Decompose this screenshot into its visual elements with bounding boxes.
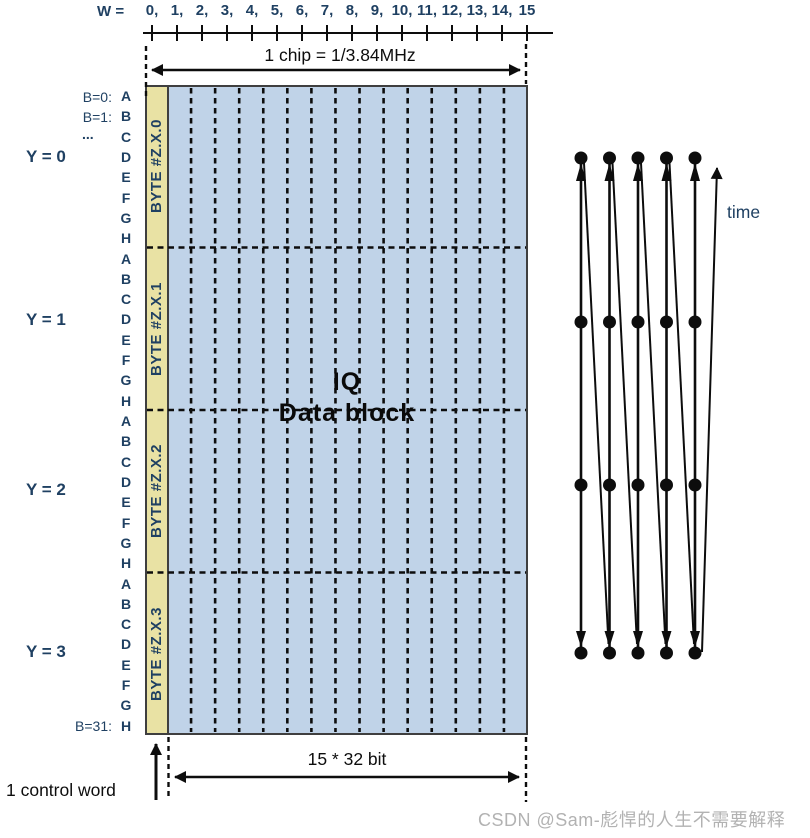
time-scan-dot (660, 152, 673, 165)
bit-letter: H (112, 230, 140, 246)
time-scan-dot (632, 152, 645, 165)
time-scan-dot (603, 316, 616, 329)
ruler-tick-label: 15 (512, 3, 542, 19)
down-arrowhead (605, 631, 615, 647)
time-scan-dot (689, 479, 702, 492)
time-label: time (727, 203, 760, 222)
bit-letter: C (112, 291, 140, 307)
bit-letter: G (112, 535, 140, 551)
byte-label: BYTE #Z.X.3 (147, 574, 167, 734)
byte-label: BYTE #Z.X.1 (147, 249, 167, 409)
y-label: Y = 2 (26, 480, 96, 499)
y-label: Y = 3 (26, 642, 96, 661)
bit-letter: C (112, 454, 140, 470)
bit-letter: H (112, 555, 140, 571)
bit-letter: B (112, 108, 140, 124)
time-scan-dot (689, 647, 702, 660)
byte-label: BYTE #Z.X.0 (147, 86, 167, 246)
time-scan-dot (660, 647, 673, 660)
bit-letter: E (112, 169, 140, 185)
bit0-label: B=0: (50, 89, 112, 105)
control-word-label: 1 control word (6, 781, 116, 800)
down-arrowhead (576, 631, 586, 647)
bit-letter: A (112, 251, 140, 267)
bit-letter: A (112, 88, 140, 104)
bit-letter: E (112, 494, 140, 510)
bit-letter: E (112, 657, 140, 673)
diagram-canvas: W = 1 chip = 1/3.84MHz B=0: B=1: ... B=3… (0, 0, 810, 838)
ellipsis-label: ... (82, 126, 94, 142)
time-scan-dot (689, 152, 702, 165)
bit-letter: D (112, 149, 140, 165)
y-label: Y = 0 (26, 147, 96, 166)
bit-letter: B (112, 433, 140, 449)
time-scan-dot (603, 647, 616, 660)
bit-letter: F (112, 190, 140, 206)
time-scan-dot (575, 152, 588, 165)
bit-letter: C (112, 616, 140, 632)
block-title: IQ Data block (197, 367, 497, 429)
bit-letter: C (112, 129, 140, 145)
bit-letter: F (112, 352, 140, 368)
bit-letter: A (112, 413, 140, 429)
time-scan-dot (660, 479, 673, 492)
time-scan-dot (575, 479, 588, 492)
time-scan-dot (689, 316, 702, 329)
bit-letter: A (112, 576, 140, 592)
bit31-label: B=31: (40, 718, 112, 734)
up-arrowhead (690, 163, 700, 181)
time-scan-dot (632, 647, 645, 660)
block-title-line2: Data block (279, 399, 415, 427)
bit-letter: G (112, 697, 140, 713)
block-title-line1: IQ (333, 368, 361, 396)
bit-letter: E (112, 332, 140, 348)
bit-letter: D (112, 474, 140, 490)
bit-letter: G (112, 210, 140, 226)
scan-return-diagonal (641, 163, 666, 644)
y-label: Y = 1 (26, 310, 96, 329)
time-scan-dot (660, 316, 673, 329)
time-scan-dot (632, 479, 645, 492)
scan-return-diagonal (670, 163, 695, 644)
time-arrow (702, 168, 717, 652)
byte-label: BYTE #Z.X.2 (147, 411, 167, 571)
bit-letter: F (112, 515, 140, 531)
down-arrowhead (662, 631, 672, 647)
scan-return-diagonal (584, 163, 609, 644)
bit-letter: F (112, 677, 140, 693)
time-scan-dot (603, 152, 616, 165)
bit-letter: D (112, 311, 140, 327)
bits-dimension-label: 15 * 32 bit (197, 750, 497, 769)
down-arrowhead (633, 631, 643, 647)
time-scan-dot (575, 316, 588, 329)
bit-letter: H (112, 718, 140, 734)
time-scan-dot (632, 316, 645, 329)
w-equals-label: W = (97, 4, 124, 20)
bit-letter: G (112, 372, 140, 388)
down-arrowhead (690, 631, 700, 647)
time-scan-dot (603, 479, 616, 492)
bit-letter: H (112, 393, 140, 409)
watermark: CSDN @Sam-彪悍的人生不需要解释 (478, 806, 808, 832)
bit-letter: B (112, 271, 140, 287)
bit-letter: D (112, 636, 140, 652)
bit-letter: B (112, 596, 140, 612)
bit1-label: B=1: (50, 109, 112, 125)
scan-return-diagonal (613, 163, 638, 644)
chip-dimension-label: 1 chip = 1/3.84MHz (180, 46, 500, 65)
time-scan-dot (575, 647, 588, 660)
